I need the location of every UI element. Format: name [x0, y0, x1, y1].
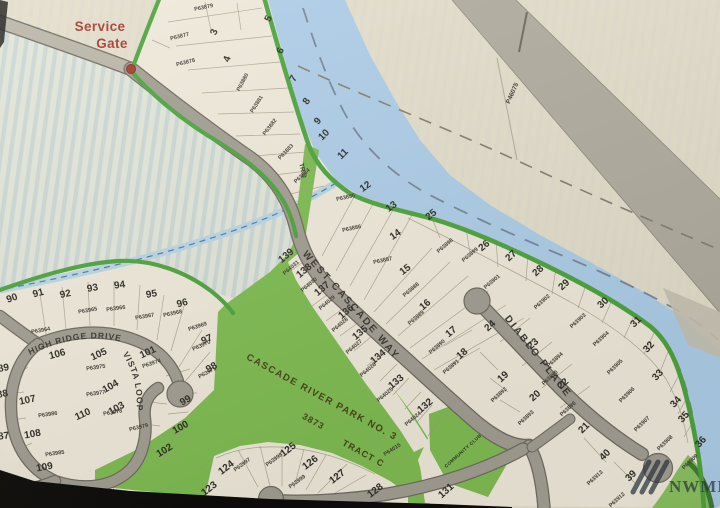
- watermark-text: NWMLS: [669, 477, 720, 496]
- diablo-north-bulb: [464, 288, 490, 314]
- service-gate-marker: [126, 64, 135, 73]
- service-gate-label-line2: Gate: [96, 36, 128, 51]
- map-canvas: WEST CASCADE WAY HIGH RIDGE DRIVE VISTA …: [0, 0, 720, 508]
- lot-number-label: 94: [113, 279, 126, 292]
- service-gate-label-line1: Service: [75, 19, 126, 34]
- plat-map-photo: WEST CASCADE WAY HIGH RIDGE DRIVE VISTA …: [0, 0, 720, 508]
